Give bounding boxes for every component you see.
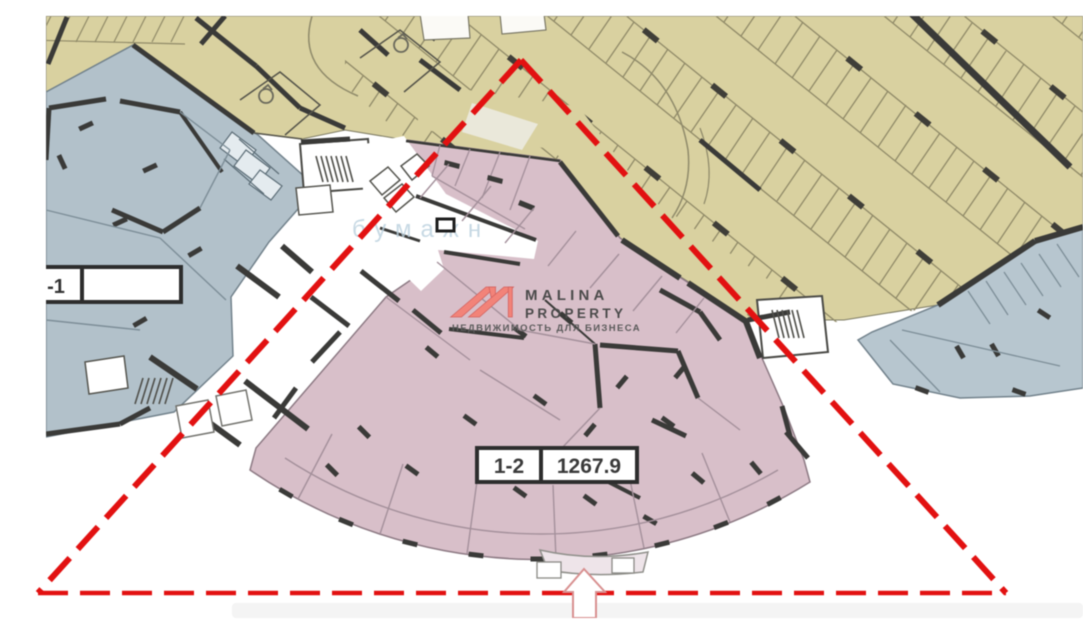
svg-text:PROPERTY: PROPERTY (525, 306, 626, 321)
svg-text:-1: -1 (47, 276, 65, 298)
svg-text:НЕДВИЖИМОСТЬ ДЛЯ БИЗНЕСА: НЕДВИЖИМОСТЬ ДЛЯ БИЗНЕСА (452, 323, 641, 334)
svg-text:1267.9: 1267.9 (557, 455, 621, 478)
svg-text:1-2: 1-2 (494, 455, 524, 478)
svg-text:MALINA: MALINA (525, 287, 609, 304)
